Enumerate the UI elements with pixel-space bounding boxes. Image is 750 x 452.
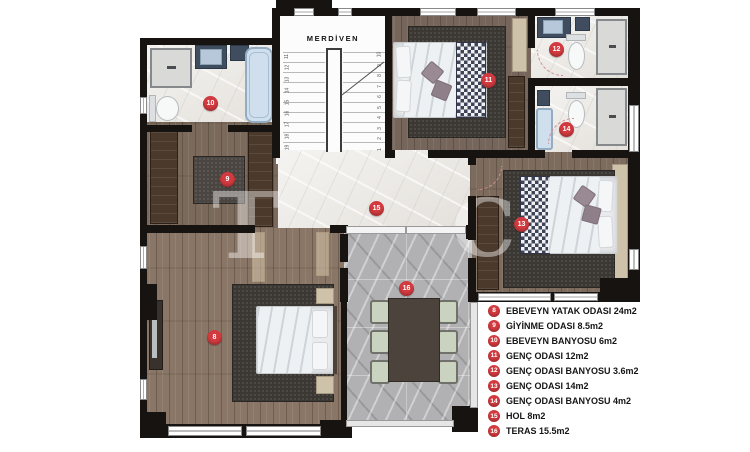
wall bbox=[385, 150, 395, 158]
legend-badge: 14 bbox=[488, 395, 500, 407]
wardrobe bbox=[477, 196, 499, 290]
toilet-bowl bbox=[156, 96, 179, 121]
window bbox=[338, 8, 352, 16]
window bbox=[168, 426, 242, 436]
dressing-ottoman bbox=[193, 156, 245, 204]
wardrobe bbox=[248, 128, 273, 227]
nightstand bbox=[316, 288, 334, 304]
legend-label: EBEVEYN YATAK ODASI 24m2 bbox=[506, 306, 637, 316]
wall bbox=[340, 268, 348, 302]
legend-label: TERAS 15.5m2 bbox=[506, 426, 570, 436]
room-badge-13: 13 bbox=[514, 217, 529, 232]
room-badge-16: 16 bbox=[399, 281, 414, 296]
wall bbox=[140, 125, 192, 132]
headboard bbox=[333, 306, 337, 374]
wall bbox=[468, 150, 476, 165]
washbasin bbox=[537, 90, 550, 106]
legend-row: 12 GENÇ ODASI BANYOSU 3.6m2 bbox=[488, 363, 750, 378]
legend-row: 9 GİYİNME ODASI 8.5m2 bbox=[488, 318, 750, 333]
legend-row: 13 GENÇ ODASI 14m2 bbox=[488, 378, 750, 393]
wardrobe bbox=[508, 76, 525, 148]
room-badge-9: 9 bbox=[220, 172, 235, 187]
shower-drain bbox=[609, 45, 616, 48]
dresser bbox=[512, 18, 527, 72]
legend-badge: 13 bbox=[488, 380, 500, 392]
toilet-tank bbox=[566, 34, 586, 41]
legend-badge: 10 bbox=[488, 335, 500, 347]
shower-drain bbox=[609, 115, 616, 118]
toilet-tank bbox=[149, 95, 156, 122]
wall bbox=[140, 38, 279, 45]
window bbox=[140, 246, 147, 269]
shower-drain bbox=[167, 66, 176, 69]
bed-pillow bbox=[312, 342, 328, 370]
legend-label: EBEVEYN BANYOSU 6m2 bbox=[506, 336, 617, 346]
legend-label: GENÇ ODASI 12m2 bbox=[506, 351, 589, 361]
legend-label: GENÇ ODASI BANYOSU 4m2 bbox=[506, 396, 631, 406]
legend-badge: 16 bbox=[488, 425, 500, 437]
room-badge-12: 12 bbox=[549, 42, 564, 57]
legend-badge: 11 bbox=[488, 350, 500, 362]
chair bbox=[370, 360, 390, 384]
open-door-leaf bbox=[252, 232, 265, 282]
wall bbox=[140, 412, 166, 438]
legend-label: GİYİNME ODASI 8.5m2 bbox=[506, 321, 603, 331]
legend-row: 10 EBEVEYN BANYOSU 6m2 bbox=[488, 333, 750, 348]
room-badge-15: 15 bbox=[369, 201, 384, 216]
room-badge-14: 14 bbox=[559, 122, 574, 137]
legend: 8 EBEVEYN YATAK ODASI 24m2 9 GİYİNME ODA… bbox=[488, 303, 750, 439]
window bbox=[246, 426, 321, 436]
legend-badge: 9 bbox=[488, 320, 500, 332]
room-badge-10: 10 bbox=[203, 96, 218, 111]
bed-pillow bbox=[597, 216, 614, 249]
vanity-sink bbox=[543, 20, 563, 34]
legend-badge: 12 bbox=[488, 365, 500, 377]
window bbox=[554, 293, 598, 301]
chair bbox=[438, 360, 458, 384]
toilet-bowl bbox=[568, 42, 585, 70]
window bbox=[294, 8, 314, 16]
chair bbox=[370, 300, 390, 324]
terrace-railing bbox=[346, 420, 454, 427]
window bbox=[140, 97, 147, 114]
legend-row: 16 TERAS 15.5m2 bbox=[488, 424, 750, 439]
wall bbox=[600, 278, 640, 302]
window bbox=[478, 293, 551, 301]
bed-throw-blanket bbox=[520, 176, 550, 254]
bathtub-basin bbox=[249, 52, 269, 118]
dining-table bbox=[388, 298, 440, 382]
chair bbox=[438, 330, 458, 354]
wall bbox=[528, 78, 535, 150]
legend-label: GENÇ ODASI 14m2 bbox=[506, 381, 589, 391]
window bbox=[140, 379, 147, 400]
window bbox=[555, 8, 595, 16]
window bbox=[629, 249, 639, 270]
bed-pillow bbox=[312, 310, 328, 338]
room-badge-11: 11 bbox=[481, 73, 496, 88]
vanity-sink bbox=[200, 49, 222, 65]
chair bbox=[438, 300, 458, 324]
nightstand bbox=[316, 376, 334, 394]
cabinet bbox=[575, 17, 590, 31]
wall bbox=[428, 150, 545, 158]
bed-pillow bbox=[395, 80, 412, 113]
legend-badge: 8 bbox=[488, 305, 500, 317]
window bbox=[629, 105, 639, 152]
legend-label: HOL 8m2 bbox=[506, 411, 545, 421]
room-badge-8: 8 bbox=[207, 330, 222, 345]
legend-label: GENÇ ODASI BANYOSU 3.6m2 bbox=[506, 366, 639, 376]
legend-badge: 15 bbox=[488, 410, 500, 422]
terrace-railing bbox=[470, 302, 478, 408]
legend-row: 14 GENÇ ODASI BANYOSU 4m2 bbox=[488, 394, 750, 409]
window bbox=[420, 8, 456, 16]
wall bbox=[140, 225, 255, 233]
terrace-sliding-door bbox=[346, 226, 466, 234]
bed-duvet bbox=[258, 307, 312, 373]
wall bbox=[468, 258, 476, 302]
wall bbox=[452, 406, 478, 432]
bed-pillow bbox=[395, 46, 412, 79]
legend-row: 8 EBEVEYN YATAK ODASI 24m2 bbox=[488, 303, 750, 318]
legend-row: 15 HOL 8m2 bbox=[488, 409, 750, 424]
open-door-leaf bbox=[316, 232, 329, 276]
wall bbox=[272, 8, 280, 158]
wall bbox=[528, 15, 535, 48]
wall bbox=[385, 8, 392, 158]
wall bbox=[228, 125, 279, 132]
floor-plan: MERDİVEN 111213141516171819 10987654321 bbox=[0, 0, 750, 452]
wall bbox=[466, 225, 476, 239]
wall bbox=[147, 284, 157, 320]
legend-row: 11 GENÇ ODASI 12m2 bbox=[488, 348, 750, 363]
wall bbox=[535, 78, 628, 86]
wall bbox=[340, 234, 348, 262]
wardrobe bbox=[150, 128, 178, 224]
wall bbox=[341, 302, 347, 424]
toilet-tank bbox=[566, 92, 586, 99]
window bbox=[477, 8, 516, 16]
chair bbox=[370, 330, 390, 354]
